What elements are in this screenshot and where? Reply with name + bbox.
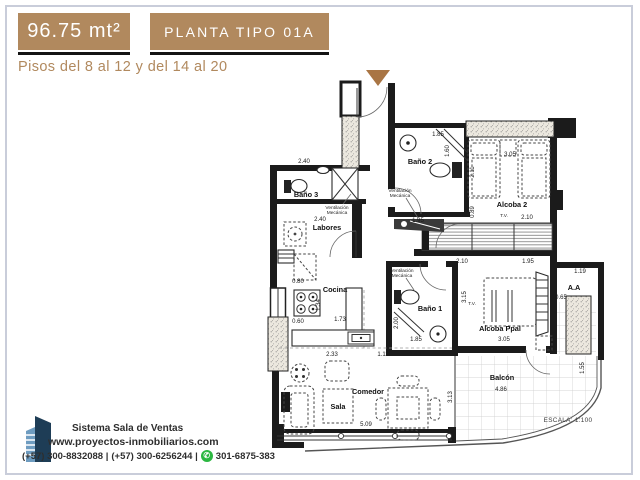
dimension-label: 1.55: [580, 362, 586, 374]
chair: [376, 398, 386, 420]
entry-arrow-icon: [366, 70, 390, 86]
dimension-label: 1.34: [316, 299, 322, 311]
dimension-label: 0.80: [292, 279, 304, 285]
toilet: [401, 290, 419, 304]
svg-text:Mecánica: Mecánica: [327, 210, 348, 216]
pillow: [521, 143, 547, 155]
chair: [397, 376, 419, 386]
dimension-label: 1.19: [574, 269, 586, 275]
counter-right: [346, 288, 362, 332]
phone-1: (+57) 300-8832088 |: [22, 451, 108, 462]
dimension-label: 0.65: [555, 295, 567, 301]
room-label-alcoba-ppal: Alcoba Ppal: [479, 324, 521, 333]
scale-label: ESCALA: 1:100: [544, 417, 593, 424]
dining-table: [388, 388, 428, 428]
dimension-label: 1.73: [334, 317, 346, 323]
dimension-label: 1.95: [522, 259, 534, 265]
bed: [518, 140, 550, 198]
room-label-labores: Labores: [313, 223, 341, 232]
dimension-label: 3.15: [462, 291, 468, 303]
room-label-cocina: Cocina: [323, 285, 348, 294]
labores-fixtures: [278, 222, 306, 263]
dimension-label: 0.60: [292, 319, 304, 325]
dimension-label: 2.33: [326, 352, 338, 358]
company-name: Sistema Sala de Ventas: [72, 423, 183, 434]
website: www.proyectos-inmobiliarios.com: [48, 436, 219, 448]
phone-numbers: (+57) 300-8832088 | (+57) 300-6256244 | …: [22, 450, 275, 462]
dimension-label: 1.95: [412, 218, 424, 224]
room-label-bano3: Baño 3: [294, 190, 318, 199]
dimension-label: 2.11: [470, 166, 476, 178]
room-label-balcon: Balcón: [490, 373, 514, 382]
room-label-bano2: Baño 2: [408, 157, 432, 166]
toilet: [430, 163, 450, 177]
round-table: [291, 364, 309, 382]
svg-text:Mecánica: Mecánica: [392, 273, 413, 279]
pillow: [471, 143, 497, 155]
dimension-label: 3.05: [498, 337, 510, 343]
whatsapp-icon: ✆: [201, 450, 213, 462]
room-label-comedor: Comedor: [352, 387, 384, 396]
dimension-label: 2.00: [394, 317, 400, 329]
dimension-label: 1.43: [409, 352, 421, 358]
room-label-aa: A.A: [568, 283, 581, 292]
tv-label: T.V.: [500, 213, 508, 219]
room-label-bano1: Baño 1: [418, 304, 442, 313]
side-table: [281, 392, 290, 412]
dimension-label: 1.85: [410, 337, 422, 343]
alcoba2-furniture: [468, 140, 550, 198]
tv-label: T.V.: [468, 301, 476, 307]
phone-2: (+57) 300-6256244 |: [111, 451, 197, 462]
dimension-label: 4.86: [495, 387, 507, 393]
chair: [430, 398, 440, 420]
dimension-label: 5.09: [360, 422, 372, 428]
dimension-label: 2.40: [314, 217, 326, 223]
dimension-label: 1.60: [445, 145, 451, 157]
dimension-label: 2.40: [298, 159, 310, 165]
dimension-label: 0.89: [470, 206, 476, 218]
floor-plan: Baño 3 Labores Cocina Sala Comedor Baño …: [0, 0, 640, 480]
dimension-label: 3.13: [448, 391, 454, 403]
deco-table: [325, 361, 349, 381]
dimension-label: 2.10: [521, 215, 533, 221]
flyer-page: 96.75 mt² PLANTA TIPO 01A Pisos del 8 al…: [0, 0, 640, 480]
cocina-fixtures: [292, 254, 374, 346]
dimension-label: 1.85: [432, 132, 444, 138]
whatsapp-number: 301-6875-383: [216, 451, 275, 462]
alcoba-ppal-furniture: [484, 272, 552, 350]
bano1-fixtures: [394, 290, 446, 342]
svg-text:Mecánica: Mecánica: [390, 193, 411, 199]
sala-furniture: [281, 361, 353, 434]
room-label-alcoba2: Alcoba 2: [497, 200, 527, 209]
vent-label-3: Ventilación Mecánica: [390, 268, 414, 290]
dimension-label: 2.10: [456, 259, 468, 265]
dimension-label: 3.05: [504, 152, 516, 158]
room-label-sala: Sala: [330, 402, 346, 411]
dimension-label: 1.11: [377, 352, 389, 358]
